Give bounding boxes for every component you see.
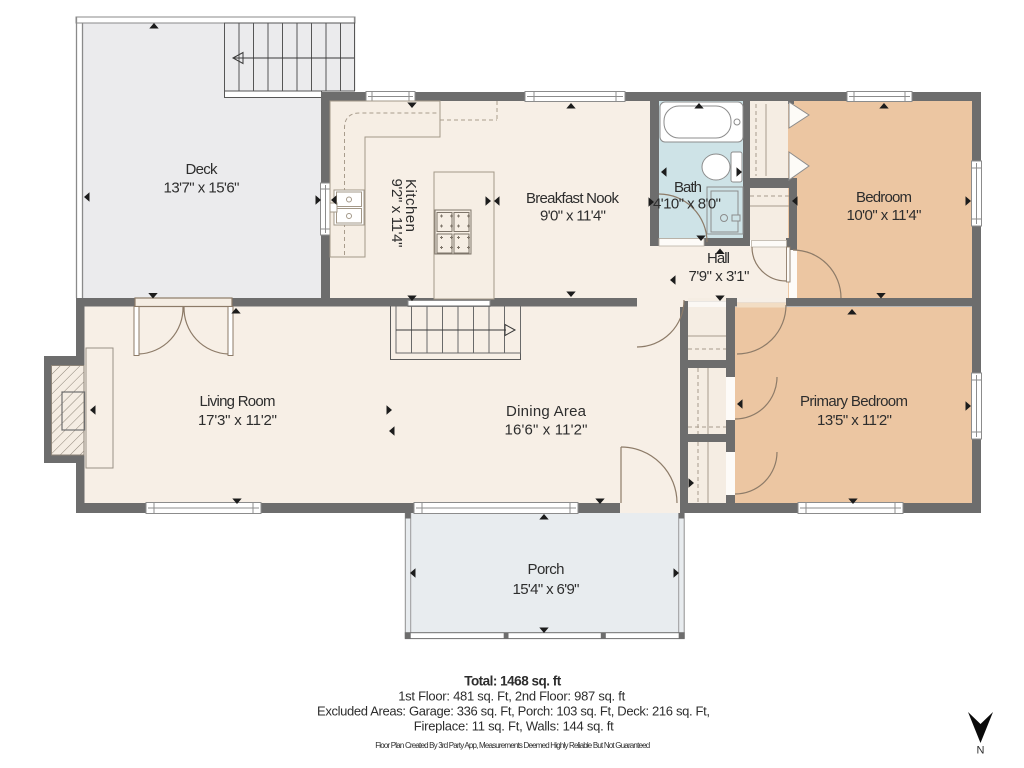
svg-text:Bath: Bath xyxy=(674,179,702,196)
svg-text:4'10" x 8'0": 4'10" x 8'0" xyxy=(653,196,721,213)
svg-text:N: N xyxy=(977,745,985,757)
svg-text:Living Room: Living Room xyxy=(200,393,276,410)
svg-text:Excluded Areas: Garage: 336 sq: Excluded Areas: Garage: 336 sq. Ft, Porc… xyxy=(317,704,710,719)
svg-text:Fireplace: 11 sq. Ft, Walls: 1: Fireplace: 11 sq. Ft, Walls: 144 sq. ft xyxy=(414,719,614,734)
svg-text:13'7" x 15'6": 13'7" x 15'6" xyxy=(164,180,240,197)
svg-text:15'4" x 6'9": 15'4" x 6'9" xyxy=(513,581,580,598)
svg-text:Primary Bedroom: Primary Bedroom xyxy=(800,393,908,410)
svg-text:1st Floor: 481 sq. Ft, 2nd Flo: 1st Floor: 481 sq. Ft, 2nd Floor: 987 sq… xyxy=(398,689,625,704)
svg-text:Porch: Porch xyxy=(528,561,565,578)
svg-text:Dining Area: Dining Area xyxy=(506,403,587,420)
svg-text:10'0" x 11'4": 10'0" x 11'4" xyxy=(847,207,922,224)
svg-text:16'6" x 11'2": 16'6" x 11'2" xyxy=(505,422,588,439)
svg-text:Breakfast Nook: Breakfast Nook xyxy=(526,190,620,207)
svg-text:9'0" x 11'4": 9'0" x 11'4" xyxy=(540,208,606,225)
svg-text:Bedroom: Bedroom xyxy=(856,189,912,206)
svg-text:13'5" x 11'2": 13'5" x 11'2" xyxy=(817,412,892,429)
svg-text:Deck: Deck xyxy=(186,161,219,178)
svg-text:17'3" x 11'2": 17'3" x 11'2" xyxy=(198,412,277,429)
svg-text:7'9" x 3'1": 7'9" x 3'1" xyxy=(689,268,750,285)
svg-text:9'2" x 11'4": 9'2" x 11'4" xyxy=(388,179,405,248)
svg-text:Total: 1468 sq. ft: Total: 1468 sq. ft xyxy=(464,674,562,689)
svg-text:Hall: Hall xyxy=(707,250,730,267)
svg-text:Floor Plan Created By 3rd Part: Floor Plan Created By 3rd Party App, Mea… xyxy=(375,741,650,750)
